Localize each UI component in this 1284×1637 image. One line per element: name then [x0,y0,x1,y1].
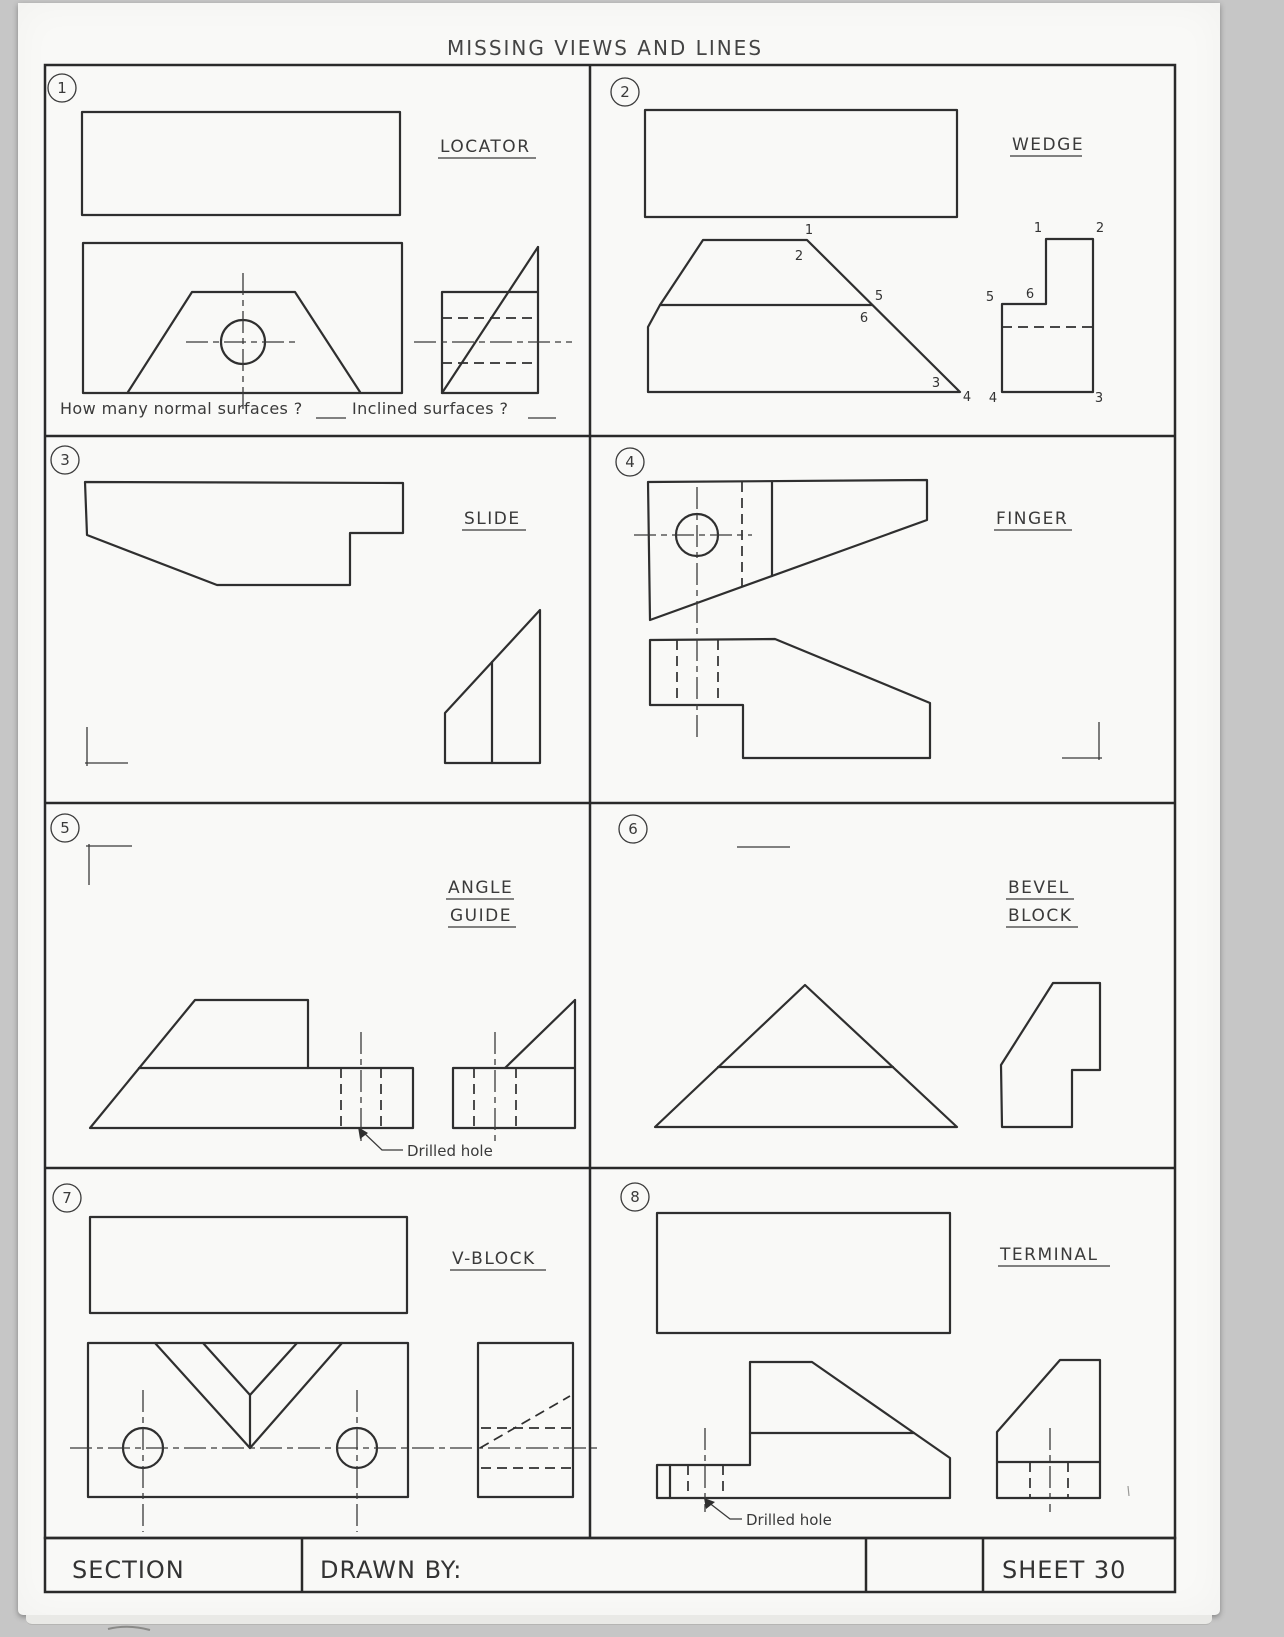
cell-number: 1 [57,79,67,97]
scan-mark [108,1627,150,1630]
part-name-label: SLIDE [464,509,521,529]
finger-front-view [650,639,930,758]
cell-number: 7 [62,1189,72,1207]
cell-number: 4 [625,453,635,471]
cell-number: 5 [60,819,70,837]
projection-corner-mark [85,727,128,766]
drilled-hole-callout: Drilled hole [358,1127,493,1160]
cell-3-slide: 3 SLIDE [51,446,540,766]
part-name-label: TERMINAL [999,1245,1098,1265]
part-name-label-line1: BEVEL [1008,878,1070,898]
vertex-label: 2 [795,249,803,264]
cell-7-v-block: 7 V-BLOCK [53,1184,597,1532]
drawn-by-label: DRAWN BY: [320,1556,462,1584]
projection-corner-mark [1062,722,1102,760]
inclined-edge [505,1000,575,1068]
cell-1-locator: 1 LOCATOR How many normal surfaces ? Inc… [48,74,572,418]
cell-6-bevel-block: 6 BEVEL BLOCK [619,815,1100,1127]
vertex-label: 6 [860,311,868,326]
question-inclined-surfaces: Inclined surfaces ? [352,399,508,418]
part-name-label-line2: BLOCK [1008,906,1072,926]
question-line: How many normal surfaces ? Inclined surf… [60,399,556,418]
cell-8-terminal: 8 TERMINAL Drilled hole [621,1183,1110,1529]
vertex-label: 6 [1026,287,1034,302]
cell-number: 3 [60,451,70,469]
wedge-side-view: 1 2 5 6 4 3 [986,221,1104,406]
callout-text: Drilled hole [407,1142,493,1160]
sheet-number: SHEET 30 [1002,1556,1126,1584]
vertex-label: 4 [989,391,997,406]
title-block: SECTION DRAWN BY: SHEET 30 [45,1538,1175,1592]
part-name-label: FINGER [996,509,1068,529]
cell-5-angle-guide: 5 ANGLE GUIDE Drilled hole [51,814,575,1160]
finger-top-view [634,480,927,620]
locator-front-view [83,243,402,409]
page-title: MISSING VIEWS AND LINES [447,36,763,60]
part-name-label: V-BLOCK [452,1249,536,1269]
angle-guide-front-view [90,1000,413,1146]
part-name-label-line1: ANGLE [448,878,513,898]
slide-side-view [445,610,540,763]
part-name-label: LOCATOR [440,137,531,157]
leader-line [708,1502,742,1519]
v-block-front-view [88,1343,408,1532]
outer-border [45,65,1175,1538]
cell-number: 6 [628,820,638,838]
hidden-groove-line [480,1396,570,1448]
locator-top-view [82,112,400,215]
part-name-label: WEDGE [1012,135,1084,155]
grid-frame [45,65,1175,1538]
slide-top-view [85,482,403,585]
terminal-front-view [657,1362,950,1512]
section-label: SECTION [72,1556,185,1584]
locator-side-view [414,247,572,393]
vertex-label: 1 [805,223,813,238]
vertex-label: 5 [986,290,994,305]
terminal-top-view [657,1213,950,1333]
cell-2-wedge: 2 WEDGE 1 2 5 6 3 4 1 2 5 6 4 3 [611,78,1104,406]
wedge-top-view [645,110,957,217]
terminal-side-view [997,1360,1100,1512]
wedge-front-view: 1 2 5 6 3 4 [648,223,971,405]
vertex-label: 5 [875,289,883,304]
bevel-block-side-view [1001,983,1100,1127]
angle-guide-side-view [453,1000,575,1146]
part-name-label-line2: GUIDE [450,906,512,926]
v-block-top-view [90,1217,407,1313]
cell-number: 2 [620,83,630,101]
projection-corner-mark [86,844,132,885]
vertex-label: 1 [1034,221,1042,236]
leader-arrowhead [704,1498,715,1509]
v-groove-inner [203,1343,297,1395]
callout-text: Drilled hole [746,1511,832,1529]
leader-line [362,1131,403,1150]
v-block-side-view [478,1343,573,1497]
vertex-label: 3 [1095,391,1103,406]
bevel-block-front-view [655,985,957,1127]
cell-4-finger: 4 FINGER [616,448,1102,760]
v-groove-outer [155,1343,342,1448]
vertex-label: 3 [932,376,940,391]
question-normal-surfaces: How many normal surfaces ? [60,399,303,418]
worksheet-drawing: MISSING VIEWS AND LINES 1 LOCATOR [0,0,1284,1637]
vertex-label: 4 [963,390,971,405]
drilled-hole-callout: Drilled hole [704,1498,832,1529]
vertex-label: 2 [1096,221,1104,236]
scan-speck [1128,1486,1129,1496]
cell-number: 8 [630,1188,640,1206]
inclined-edge [442,247,538,393]
